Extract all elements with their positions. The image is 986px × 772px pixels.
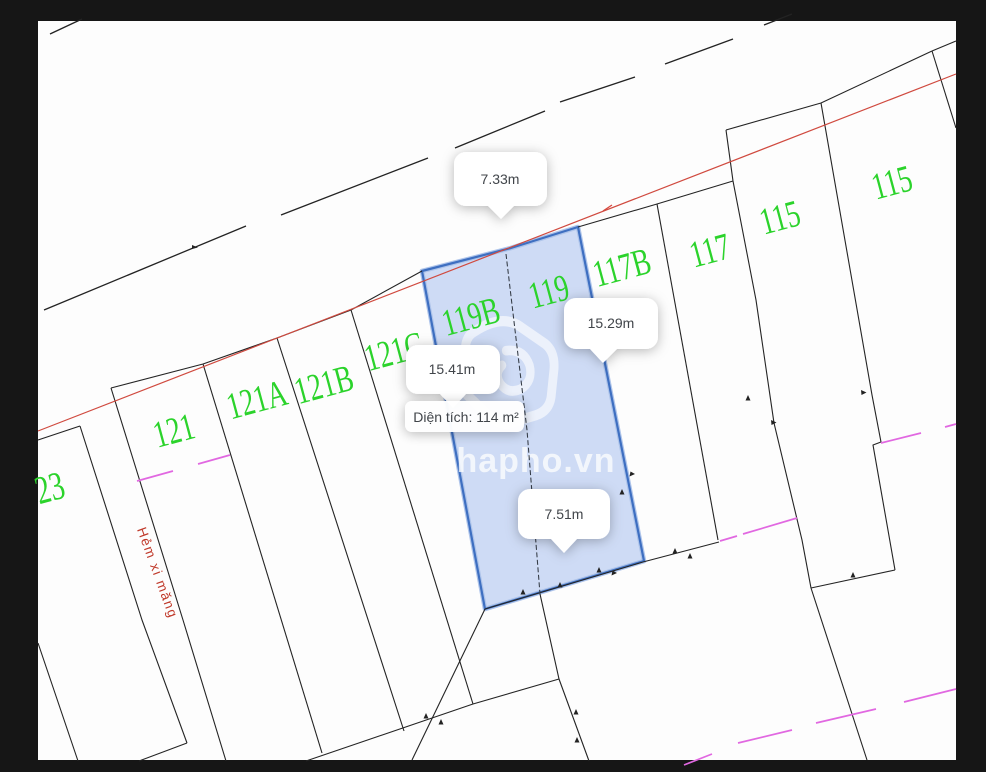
svg-text:15.41m: 15.41m [429, 361, 476, 377]
svg-text:hapho.vn: hapho.vn [456, 442, 615, 480]
svg-text:7.51m: 7.51m [545, 506, 584, 522]
svg-text:7.33m: 7.33m [481, 171, 520, 187]
svg-text:Diện tích: 114 m²: Diện tích: 114 m² [413, 409, 519, 425]
svg-text:15.29m: 15.29m [588, 315, 635, 331]
